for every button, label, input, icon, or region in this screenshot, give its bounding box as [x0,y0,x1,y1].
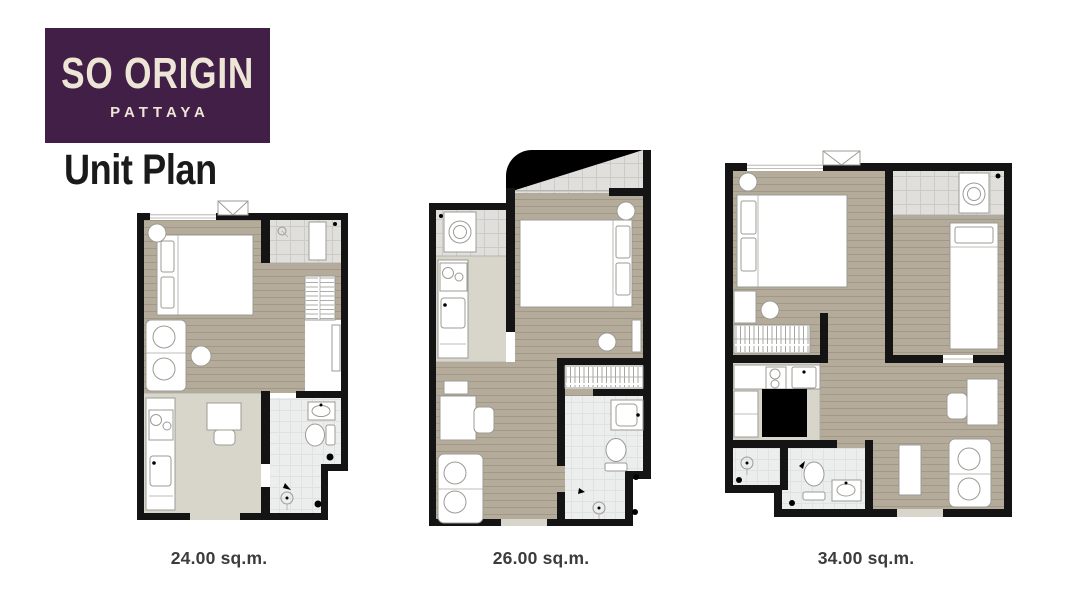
kitchen [438,260,468,358]
window [150,213,216,220]
ac-unit-icon [218,201,248,215]
stool [761,301,779,319]
area-label-26sqm: 26.00 sq.m. [461,548,621,569]
side-table [617,202,635,220]
brand-location: PATTAYA [105,105,210,120]
dresser [734,291,756,323]
side-table [739,173,757,191]
side-table [148,224,166,242]
floorplan-34sqm-svg [725,149,1012,525]
bed [737,195,847,287]
floorplan-unit-34sqm [725,149,1012,530]
ac-unit-icon [823,151,860,165]
shoe-cabinet [899,445,921,495]
sofa [146,320,186,391]
floorplan-26sqm-svg [429,136,652,527]
bed [157,235,253,315]
sofa [438,454,483,523]
page-title: Unit Plan [64,146,217,195]
coffee-table [191,346,211,366]
console-shelf [332,325,340,371]
bed-2 [950,223,998,349]
wardrobe [305,276,335,320]
washing-machine [439,212,476,252]
area-label-24sqm: 24.00 sq.m. [139,548,299,569]
area-label-34sqm: 34.00 sq.m. [786,548,946,569]
floorplan-unit-26sqm [429,136,652,532]
wardrobe [734,325,810,353]
bed [520,220,632,307]
sofa [949,439,991,507]
brand-name: SO ORIGIN [61,52,254,96]
floorplan-24sqm-svg [137,199,348,520]
wardrobe [565,366,643,388]
tv-bench [632,320,641,352]
stool [598,333,616,351]
floorplan-unit-24sqm [137,199,348,525]
brand-logo: SO ORIGIN PATTAYA [45,28,270,143]
